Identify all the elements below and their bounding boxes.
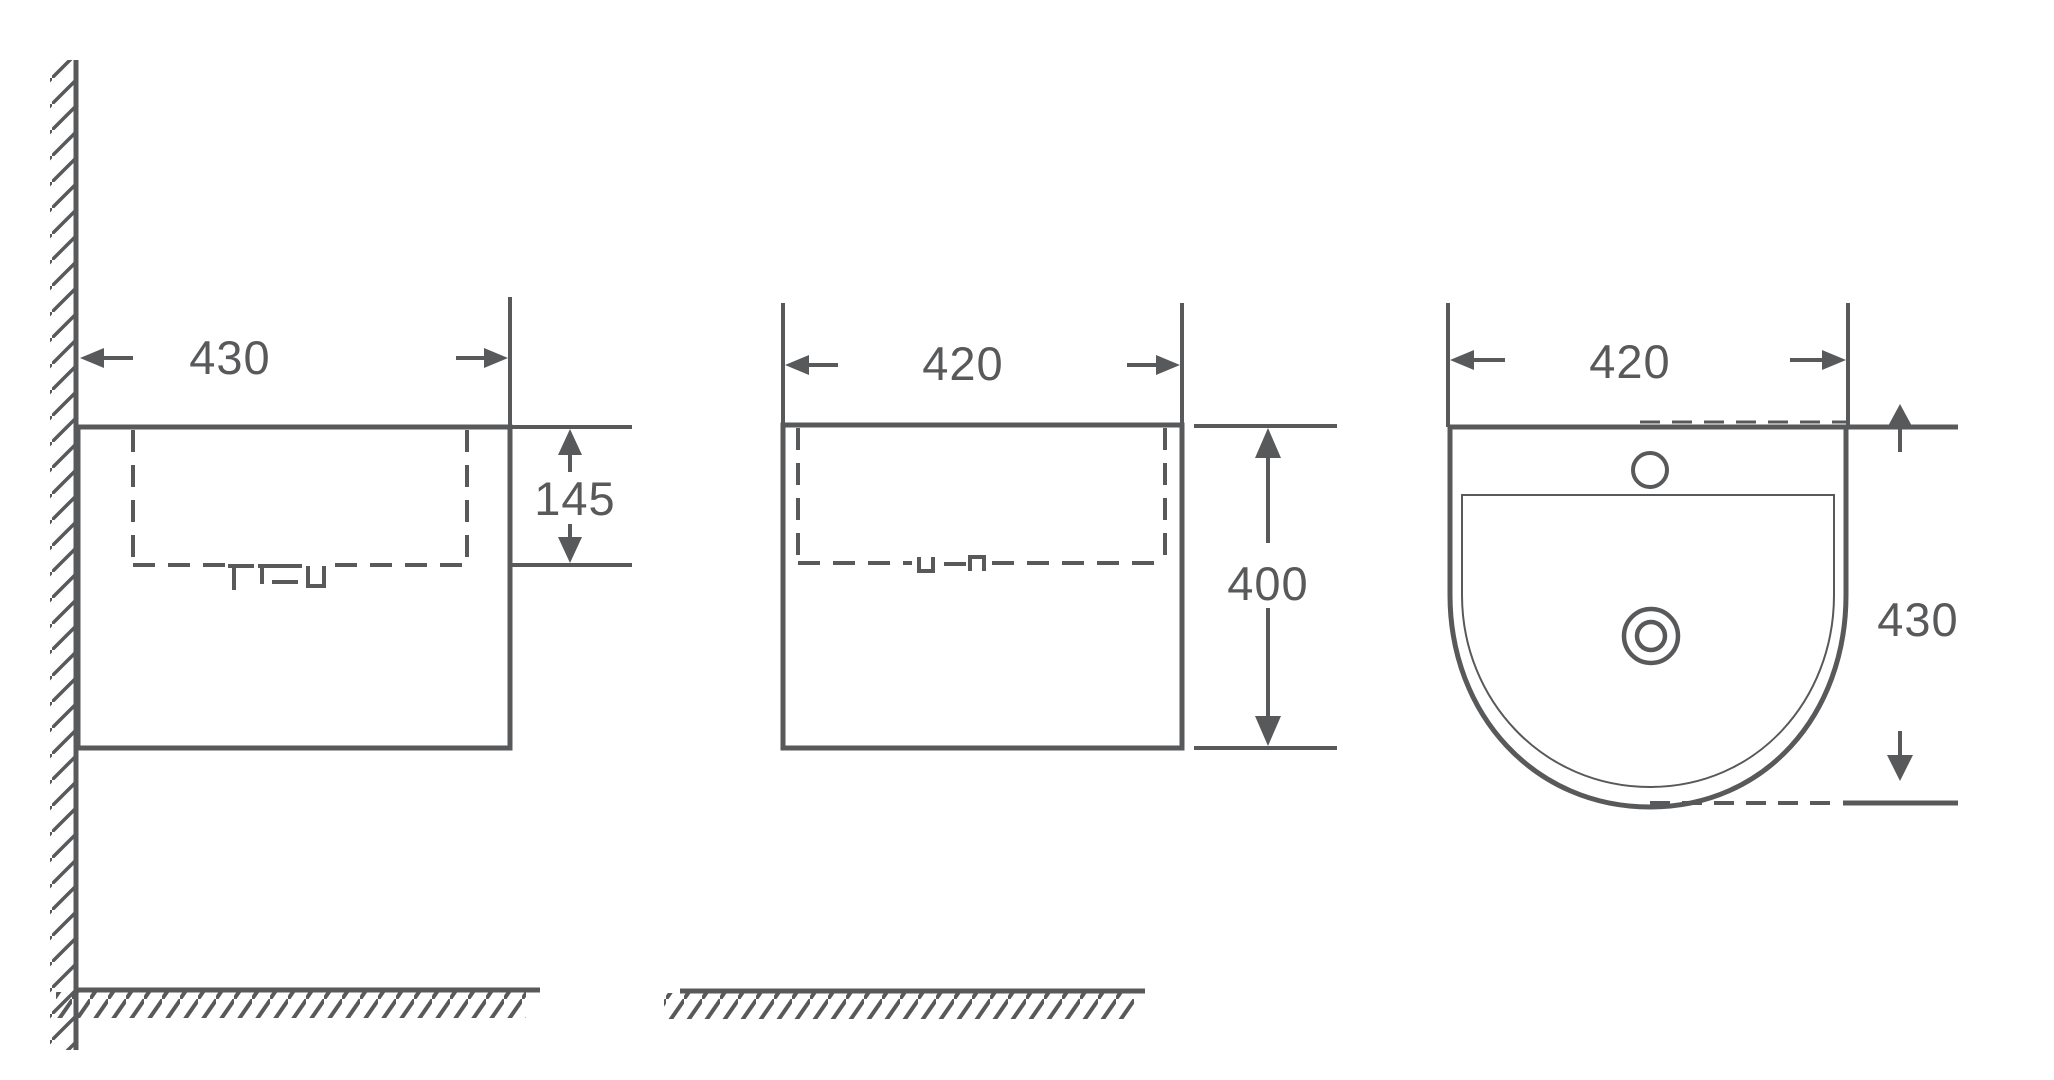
top-inner-bowl [1462, 495, 1834, 787]
tap-hole [1633, 453, 1667, 487]
arrow-left-icon [1450, 350, 1474, 370]
dim-label-front-width: 420 [922, 337, 1003, 390]
front-width-dimension: 420 [783, 303, 1182, 425]
dim-label-front-height: 400 [1227, 557, 1308, 610]
arrow-left-icon [80, 348, 104, 368]
side-width-dimension: 430 [80, 297, 510, 427]
side-basin-depth-dimension: 145 [510, 427, 632, 565]
arrow-up-icon [558, 429, 582, 455]
side-view: 430 145 [50, 60, 632, 1050]
side-inner-bowl-hidden [133, 430, 467, 565]
arrow-down-icon [1887, 755, 1913, 781]
arrow-down-icon [558, 537, 582, 563]
basin-technical-drawing: 430 145 [0, 0, 2054, 1080]
side-basin-outline [78, 427, 510, 748]
arrow-up-icon [1255, 428, 1281, 458]
dim-label-top-width: 420 [1589, 335, 1670, 388]
dim-label-side-basin-depth: 145 [534, 472, 615, 525]
arrow-down-icon [1255, 716, 1281, 746]
arrow-right-icon [1822, 350, 1846, 370]
dim-label-side-width: 430 [189, 331, 270, 384]
top-depth-dimension: 430 [1650, 404, 1959, 803]
arrow-up-icon [1887, 404, 1913, 428]
front-height-dimension: 400 [1194, 426, 1337, 748]
floor-hatch [56, 992, 526, 1018]
wall-hatch [50, 60, 76, 1050]
drain-hole [1624, 609, 1678, 663]
dim-label-top-depth: 430 [1877, 593, 1958, 646]
top-basin-outline [1450, 427, 1846, 807]
top-width-dimension: 420 [1448, 303, 1848, 427]
front-drain-detail [919, 557, 984, 571]
arrow-right-icon [1156, 355, 1180, 375]
floor-right [664, 991, 1145, 1019]
arrow-right-icon [484, 348, 508, 368]
top-view: 420 430 [1448, 303, 1959, 807]
arrow-left-icon [785, 355, 809, 375]
side-drain-detail [228, 566, 324, 590]
floor-left [56, 990, 540, 1018]
floor-hatch [664, 993, 1134, 1019]
front-inner-bowl-hidden [798, 428, 1165, 563]
front-view: 420 400 [664, 303, 1337, 1019]
drawing-canvas: 430 145 [0, 0, 2054, 1080]
front-basin-outline [783, 425, 1182, 748]
